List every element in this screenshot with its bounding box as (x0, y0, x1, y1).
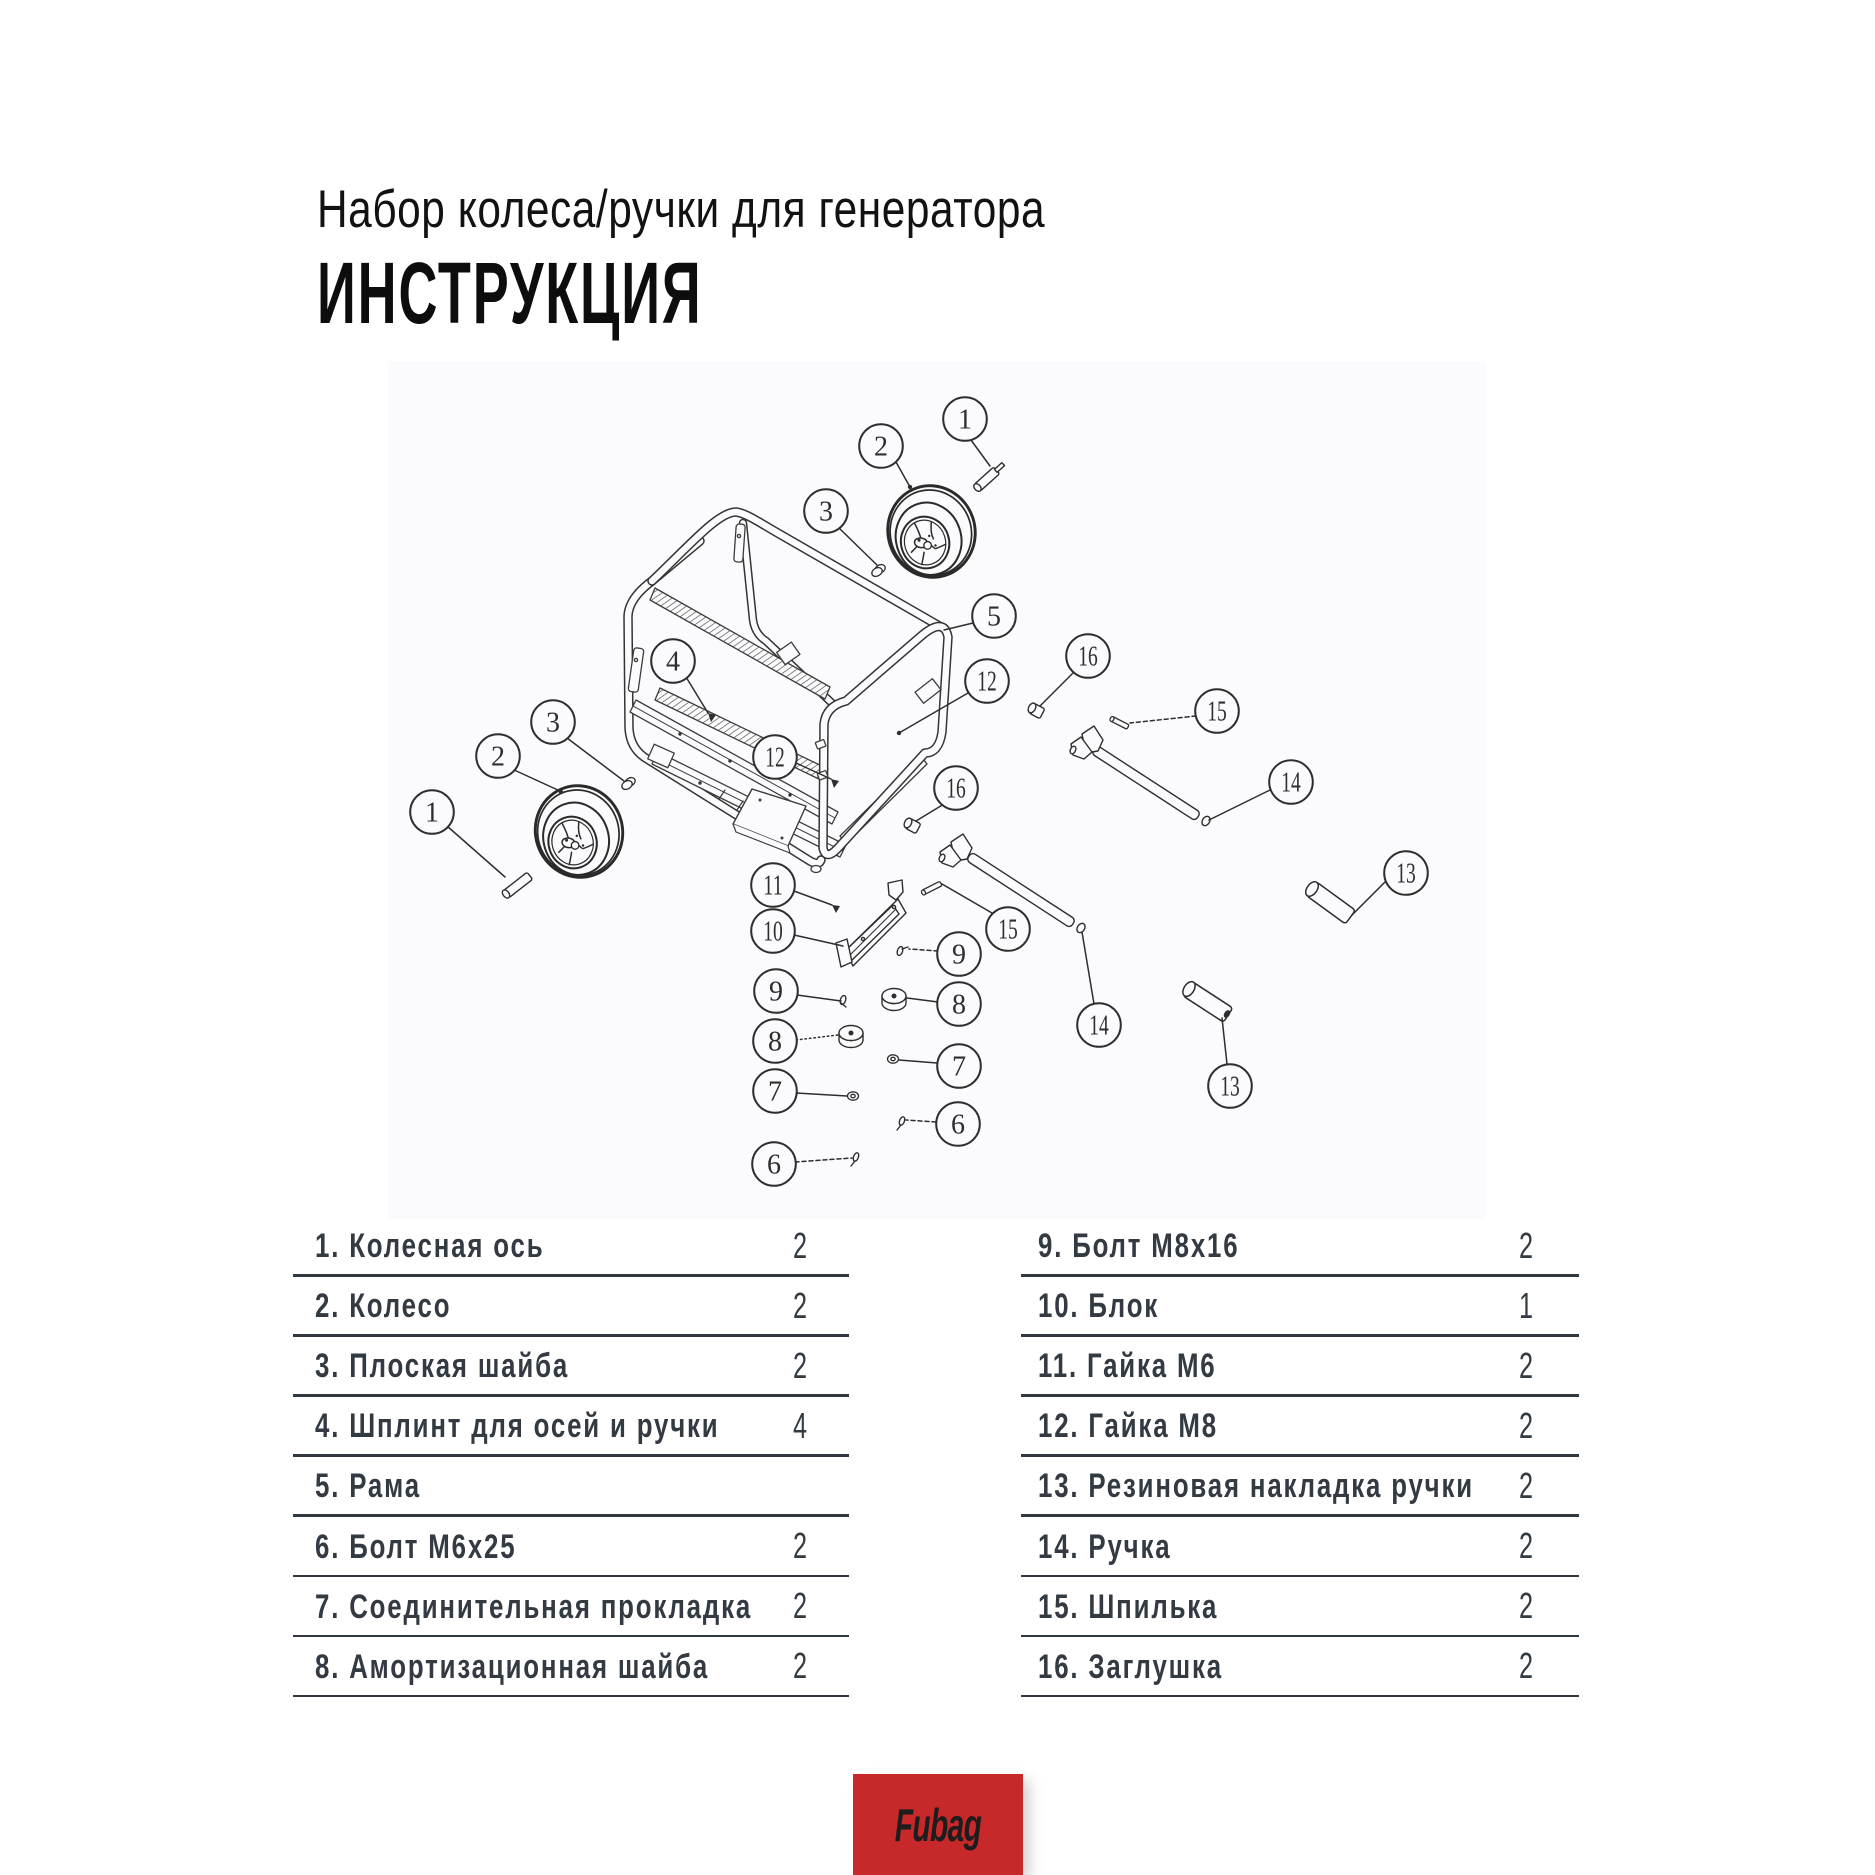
svg-text:3: 3 (546, 708, 560, 739)
svg-text:12: 12 (977, 667, 997, 698)
svg-text:12: 12 (765, 743, 785, 774)
svg-text:9: 9 (769, 977, 783, 1008)
svg-text:10: 10 (763, 917, 783, 948)
svg-text:6: 6 (951, 1110, 965, 1141)
svg-text:5: 5 (987, 602, 1001, 633)
svg-text:14: 14 (1281, 768, 1301, 799)
svg-text:13: 13 (1396, 859, 1416, 890)
svg-text:2: 2 (874, 432, 888, 463)
svg-text:16: 16 (946, 774, 966, 805)
svg-text:3: 3 (819, 497, 833, 528)
svg-text:1: 1 (958, 405, 972, 436)
svg-text:2: 2 (491, 742, 505, 773)
svg-text:8: 8 (952, 990, 966, 1021)
svg-text:15: 15 (1207, 697, 1227, 728)
svg-text:1: 1 (425, 798, 439, 829)
svg-text:15: 15 (998, 915, 1018, 946)
svg-text:7: 7 (952, 1052, 966, 1083)
svg-text:9: 9 (952, 940, 966, 971)
svg-text:14: 14 (1089, 1011, 1109, 1042)
svg-text:8: 8 (768, 1027, 782, 1058)
svg-text:7: 7 (768, 1077, 782, 1108)
svg-text:4: 4 (666, 647, 680, 678)
svg-text:11: 11 (763, 871, 783, 902)
svg-text:6: 6 (767, 1150, 781, 1181)
svg-text:13: 13 (1220, 1072, 1240, 1103)
svg-text:16: 16 (1078, 642, 1098, 673)
